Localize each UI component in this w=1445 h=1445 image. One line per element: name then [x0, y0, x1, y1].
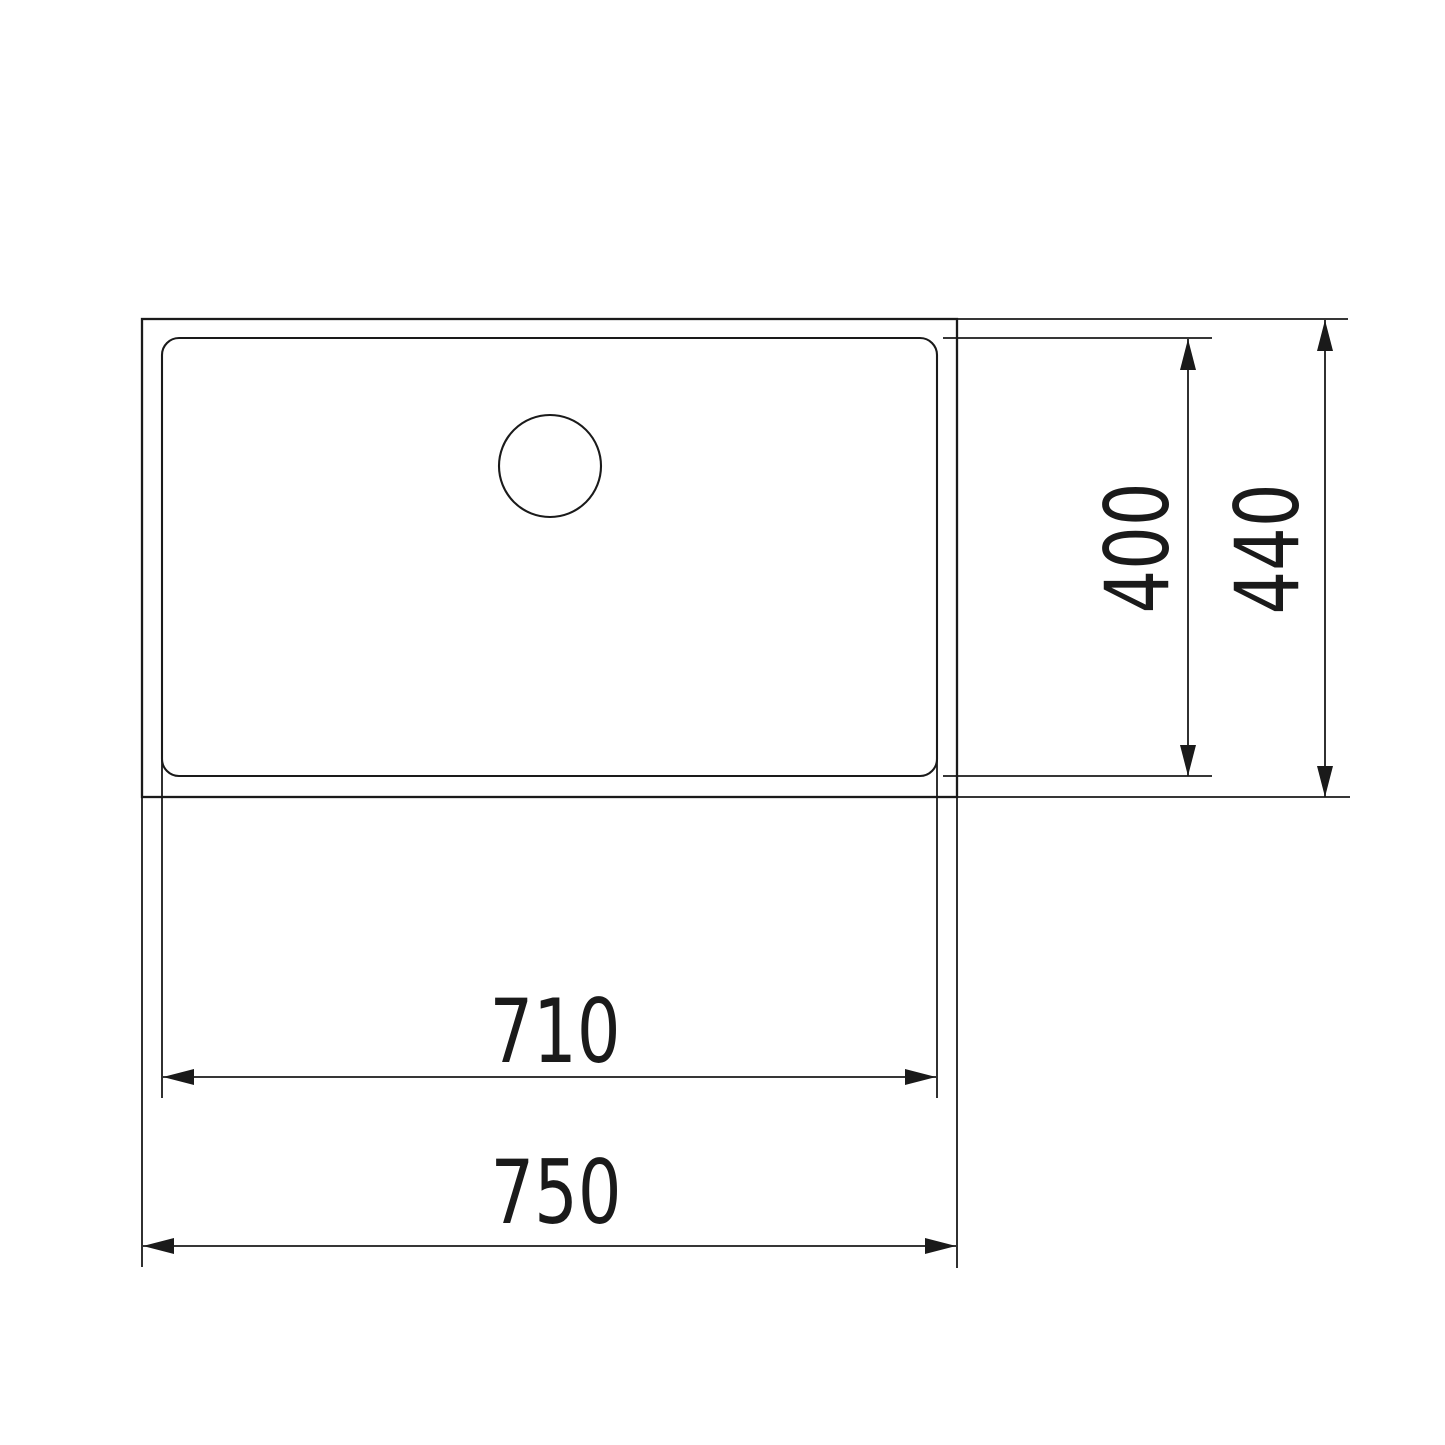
technical-drawing-page: 400 440 710 750	[0, 0, 1445, 1445]
arrow-right-icon	[925, 1238, 956, 1254]
arrow-left-icon	[143, 1238, 174, 1254]
arrow-left-icon	[163, 1069, 194, 1085]
dimension-inner-depth: 400	[1087, 339, 1196, 776]
sink-outer-outline	[142, 319, 957, 797]
dimension-outer-width: 750	[143, 1142, 956, 1254]
arrow-up-icon	[1180, 339, 1196, 370]
sink-dimension-drawing: 400 440 710 750	[0, 0, 1445, 1445]
arrow-down-icon	[1180, 745, 1196, 776]
drain-hole	[499, 415, 601, 517]
arrow-right-icon	[905, 1069, 936, 1085]
dimension-inner-width: 710	[163, 981, 936, 1085]
dimension-outer-depth: 440	[1217, 320, 1333, 797]
sink-bowl-outline	[162, 338, 937, 776]
dimension-label-outer-depth: 440	[1217, 484, 1320, 615]
arrow-down-icon	[1317, 766, 1333, 797]
dimension-label-inner-depth: 400	[1087, 483, 1190, 614]
dimension-label-inner-width: 710	[490, 981, 621, 1084]
arrow-up-icon	[1317, 320, 1333, 351]
dimension-label-outer-width: 750	[491, 1142, 622, 1245]
